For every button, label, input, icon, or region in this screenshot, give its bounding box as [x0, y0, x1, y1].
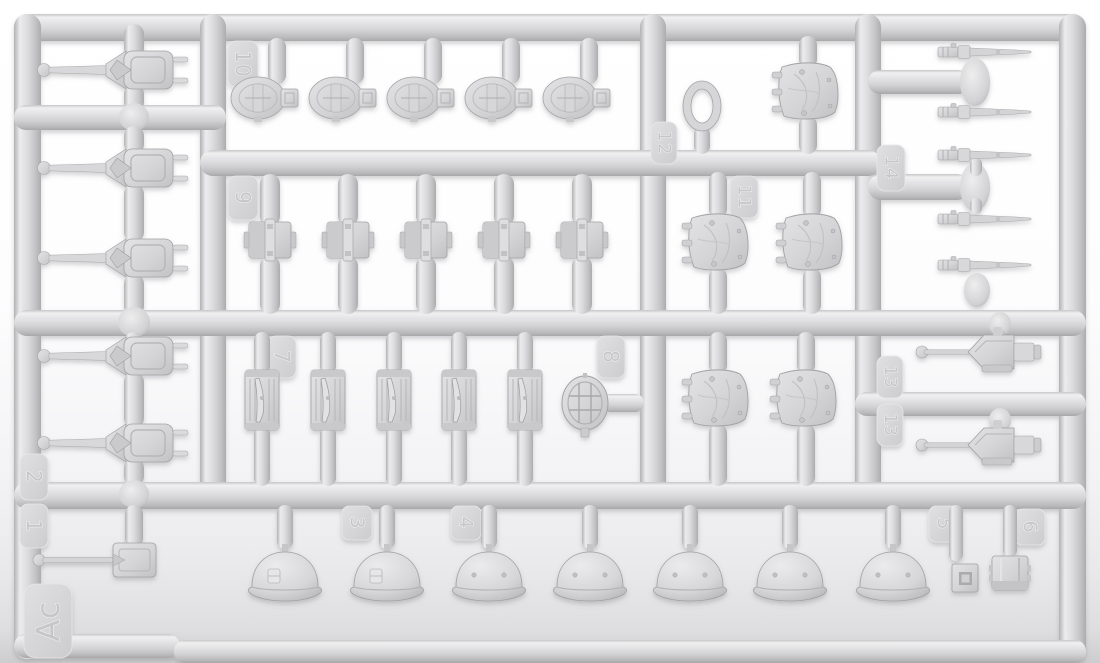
stub	[451, 426, 467, 486]
sprue-drawing: 10 9 7 8 12 11	[0, 0, 1100, 663]
label-2-text: 2	[22, 470, 46, 484]
part-hatch-ring	[683, 81, 721, 131]
label-4-text: 4	[455, 516, 477, 529]
stub	[970, 158, 982, 176]
stub	[782, 505, 798, 549]
stub	[502, 38, 520, 84]
stub	[386, 426, 402, 486]
part-helmet-7	[856, 552, 929, 601]
stub	[346, 38, 364, 84]
label-tab-3: 3	[342, 506, 372, 540]
stub	[254, 426, 270, 486]
stub	[494, 256, 514, 314]
runner-top	[14, 14, 1086, 41]
stub	[803, 172, 821, 218]
part-turret-4	[38, 337, 189, 375]
stub	[416, 256, 436, 314]
stub	[580, 38, 598, 84]
label-13b-text: 13	[880, 413, 900, 437]
runner-joint	[119, 480, 149, 508]
stub	[885, 505, 901, 549]
runner-arm-14a	[868, 70, 970, 94]
stub	[277, 505, 293, 549]
stub	[803, 268, 821, 314]
stub	[1003, 505, 1017, 557]
stub	[260, 174, 280, 226]
stub	[125, 505, 143, 547]
runner-vertical-1	[200, 14, 226, 509]
part-square-fitting	[952, 564, 978, 592]
stub	[709, 332, 727, 374]
label-tab-13-lower: 13	[877, 404, 903, 446]
stub	[124, 372, 144, 428]
stub	[799, 116, 817, 154]
part-gun-barrel-1	[938, 44, 1031, 59]
part-turret-shell-3	[776, 214, 842, 270]
part-rifle-frame-5	[508, 370, 542, 430]
stub	[254, 332, 270, 374]
stub	[572, 256, 592, 314]
runner-joint	[960, 58, 990, 106]
part-breech-4	[478, 219, 530, 261]
part-helmet-1	[248, 552, 321, 601]
label-7-text: 7	[270, 350, 294, 364]
part-mantlet-3	[387, 77, 454, 122]
stub	[709, 424, 727, 486]
stub	[970, 198, 982, 214]
stub	[517, 426, 533, 486]
runner-horizontal-main	[14, 482, 1086, 509]
stub	[416, 174, 436, 226]
label-10-text: 10	[231, 50, 255, 77]
label-6-text: 6	[1019, 520, 1041, 533]
part-breech-3	[400, 219, 452, 261]
label-12-text: 12	[654, 131, 675, 156]
stub	[582, 505, 598, 549]
part-mantlet-5	[543, 77, 610, 122]
part-breech-5	[556, 219, 608, 261]
part-helmet-3	[452, 552, 525, 601]
label-tab-11: 11	[730, 176, 758, 218]
part-rifle-frame-4	[442, 370, 476, 430]
label-tab-14: 14	[877, 145, 905, 191]
stub	[268, 38, 286, 84]
stub	[320, 332, 336, 374]
part-breech-1	[244, 219, 296, 261]
stub	[797, 332, 815, 374]
part-mantlet-1	[231, 77, 298, 122]
part-turret-5	[38, 424, 189, 462]
stub	[682, 505, 698, 549]
stub	[494, 174, 514, 226]
runner-bottom-rail	[174, 640, 1086, 663]
part-gun-barrel-3	[938, 147, 1031, 162]
part-helmet-4	[553, 552, 626, 601]
stub	[517, 332, 533, 374]
part-turret-1	[38, 51, 189, 89]
runner-joint	[964, 273, 990, 307]
stub	[386, 332, 402, 374]
part-turret-shell-5	[770, 370, 836, 426]
stub	[424, 38, 442, 84]
stub	[709, 172, 727, 218]
runner-right	[1059, 14, 1086, 663]
runner-horizontal-1	[200, 150, 881, 176]
stub	[338, 256, 358, 314]
label-tab-2: 2	[20, 454, 48, 500]
label-tab-1: 1	[20, 504, 48, 548]
label-1-text: 1	[22, 519, 46, 533]
part-turret-shell-4	[682, 370, 748, 426]
runner-horizontal-2	[14, 310, 1086, 336]
part-gun-barrel-2	[938, 104, 1031, 119]
stub	[949, 505, 963, 561]
part-breech-2	[322, 219, 374, 261]
stub	[709, 268, 727, 314]
part-gun-mount-2	[916, 420, 1041, 465]
stub	[481, 505, 497, 549]
label-8-text: 8	[599, 350, 623, 364]
label-tab-8: 8	[597, 336, 625, 378]
stub	[379, 505, 395, 549]
stub	[451, 332, 467, 374]
part-gun-barrel-5	[938, 257, 1031, 272]
stub	[338, 174, 358, 226]
part-helmet-5	[653, 552, 726, 601]
sprue-photo: 10 9 7 8 12 11	[0, 0, 1100, 663]
part-turret-2	[38, 149, 189, 187]
part-turret-shell-2	[682, 214, 748, 270]
label-tab-9: 9	[228, 176, 258, 220]
sprue-id-text: Ac	[29, 601, 67, 642]
part-turret-3	[38, 239, 189, 277]
stub	[320, 426, 336, 486]
part-helmet-6	[753, 552, 826, 601]
part-mantlet-4	[465, 77, 532, 122]
sprue-assembly: 10 9 7 8 12 11	[14, 14, 1086, 663]
label-9-text: 9	[231, 191, 255, 205]
label-tab-6: 6	[1015, 509, 1045, 545]
part-rifle-frame-1	[245, 370, 279, 430]
stub	[260, 256, 280, 314]
runner-vertical-2	[640, 14, 666, 509]
stub	[124, 184, 144, 242]
part-turret-shell-1	[772, 63, 838, 119]
label-tab-ac: Ac	[24, 584, 72, 658]
label-13a-text: 13	[880, 365, 900, 389]
label-tab-13-upper: 13	[877, 356, 903, 398]
part-gun-barrel-4	[938, 211, 1031, 226]
label-tab-4: 4	[451, 506, 481, 540]
label-14-text: 14	[881, 156, 902, 181]
part-rifle-frame-3	[377, 370, 411, 430]
label-tab-12: 12	[651, 122, 677, 164]
part-gun-shield	[33, 543, 156, 577]
part-helmet-2	[350, 552, 423, 601]
part-rifle-frame-2	[311, 370, 345, 430]
part-drum-canister	[989, 556, 1031, 590]
part-grilled-hatch	[562, 373, 608, 437]
stub	[797, 424, 815, 486]
part-mantlet-2	[309, 77, 376, 122]
label-3-text: 3	[346, 516, 368, 529]
label-11-text: 11	[734, 185, 755, 210]
stub	[572, 174, 592, 226]
